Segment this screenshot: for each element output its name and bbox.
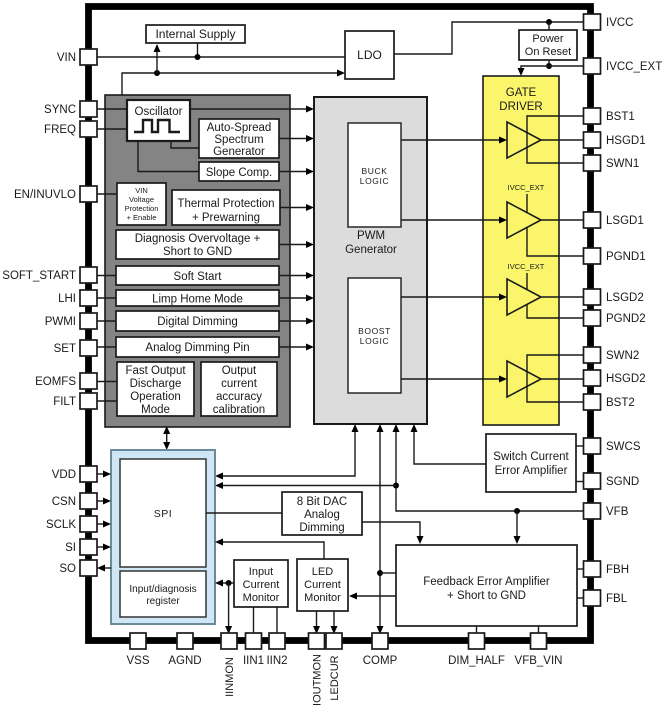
svg-text:LOGIC: LOGIC <box>360 336 389 346</box>
svg-text:HSGD1: HSGD1 <box>606 135 646 147</box>
svg-text:Input: Input <box>249 566 273 578</box>
svg-text:IINMON: IINMON <box>224 657 236 697</box>
svg-text:IVCC_EXT: IVCC_EXT <box>606 61 662 73</box>
svg-text:calibration: calibration <box>213 404 265 416</box>
svg-text:Protection: Protection <box>125 204 159 213</box>
svg-text:HSGD2: HSGD2 <box>606 373 646 385</box>
svg-text:SGND: SGND <box>606 476 639 488</box>
svg-text:Analog: Analog <box>304 509 340 521</box>
svg-text:Analog Dimming Pin: Analog Dimming Pin <box>145 342 249 354</box>
svg-text:+ Short to GND: + Short to GND <box>447 590 526 602</box>
svg-text:SYNC: SYNC <box>44 104 76 116</box>
svg-text:IOUTMON: IOUTMON <box>312 654 324 706</box>
svg-text:IIN2: IIN2 <box>266 655 287 667</box>
svg-text:Operation: Operation <box>130 391 181 403</box>
svg-text:Power: Power <box>532 33 564 45</box>
svg-text:EN/INUVLO: EN/INUVLO <box>14 189 76 201</box>
svg-text:Voltage: Voltage <box>129 195 154 204</box>
svg-text:IVCC_EXT: IVCC_EXT <box>508 262 545 271</box>
svg-text:Diagnosis Overvoltage +: Diagnosis Overvoltage + <box>135 233 261 245</box>
svg-text:AGND: AGND <box>168 655 201 667</box>
svg-text:VDD: VDD <box>52 469 76 481</box>
svg-text:LSGD1: LSGD1 <box>606 215 644 227</box>
svg-text:Current: Current <box>243 579 280 591</box>
svg-text:PGND2: PGND2 <box>606 313 646 325</box>
svg-text:IVCC: IVCC <box>606 17 633 29</box>
svg-text:Feedback Error Amplifier: Feedback Error Amplifier <box>423 576 550 588</box>
svg-text:SWN1: SWN1 <box>606 158 639 170</box>
svg-text:SI: SI <box>65 542 76 554</box>
svg-text:Switch Current: Switch Current <box>493 451 569 463</box>
svg-text:DIM_HALF: DIM_HALF <box>448 655 505 667</box>
svg-text:BUCK: BUCK <box>361 166 387 176</box>
svg-text:DRIVER: DRIVER <box>499 101 542 113</box>
svg-text:current: current <box>221 378 258 390</box>
svg-text:Monitor: Monitor <box>243 592 280 604</box>
svg-text:SWCS: SWCS <box>606 441 641 453</box>
svg-text:Fast Output: Fast Output <box>125 365 186 377</box>
svg-text:LED: LED <box>312 566 333 578</box>
svg-text:SPI: SPI <box>154 508 172 520</box>
svg-text:PGND1: PGND1 <box>606 251 646 263</box>
svg-text:BOOST: BOOST <box>358 326 391 336</box>
svg-text:Digital Dimming: Digital Dimming <box>157 316 238 328</box>
svg-text:SWN2: SWN2 <box>606 350 639 362</box>
svg-text:LSGD2: LSGD2 <box>606 292 644 304</box>
svg-text:accuracy: accuracy <box>216 391 262 403</box>
svg-text:CSN: CSN <box>52 496 76 508</box>
svg-text:Short to GND: Short to GND <box>163 246 232 258</box>
svg-text:LEDCUR: LEDCUR <box>329 655 341 700</box>
svg-text:Monitor: Monitor <box>304 592 341 604</box>
svg-text:BST2: BST2 <box>606 397 635 409</box>
svg-text:Generator: Generator <box>345 244 397 256</box>
svg-text:+ Prewarning: + Prewarning <box>192 212 260 224</box>
svg-text:Thermal Protection: Thermal Protection <box>177 198 274 210</box>
svg-text:GATE: GATE <box>506 87 537 99</box>
svg-text:Limp Home Mode: Limp Home Mode <box>152 294 243 306</box>
svg-text:FBH: FBH <box>606 564 629 576</box>
svg-text:LHI: LHI <box>58 293 76 305</box>
svg-text:Discharge: Discharge <box>130 378 182 390</box>
svg-text:Spectrum: Spectrum <box>214 134 263 146</box>
svg-text:FILT: FILT <box>53 396 76 408</box>
svg-text:EOMFS: EOMFS <box>35 376 76 388</box>
svg-text:On Reset: On Reset <box>525 46 571 58</box>
svg-text:Dimming: Dimming <box>299 522 344 534</box>
svg-text:Soft Start: Soft Start <box>174 271 223 283</box>
svg-text:Auto-Spread: Auto-Spread <box>207 122 272 134</box>
svg-text:Generator: Generator <box>213 146 265 158</box>
svg-text:VFB_VIN: VFB_VIN <box>515 655 563 667</box>
svg-text:LDO: LDO <box>357 48 382 62</box>
svg-text:VSS: VSS <box>126 655 149 667</box>
svg-text:+ Enable: + Enable <box>127 213 157 222</box>
svg-text:VIN: VIN <box>135 186 148 195</box>
svg-text:8 Bit DAC: 8 Bit DAC <box>297 496 348 508</box>
svg-text:register: register <box>146 596 180 607</box>
svg-text:Slope Comp.: Slope Comp. <box>206 167 272 179</box>
svg-text:IIN1: IIN1 <box>243 655 264 667</box>
svg-text:LOGIC: LOGIC <box>360 176 389 186</box>
svg-text:BST1: BST1 <box>606 111 635 123</box>
svg-text:Error Amplifier: Error Amplifier <box>495 465 568 477</box>
svg-text:Internal Supply: Internal Supply <box>155 27 235 41</box>
svg-text:Output: Output <box>222 365 257 377</box>
svg-text:FBL: FBL <box>606 593 628 605</box>
svg-text:SO: SO <box>59 563 76 575</box>
svg-text:SCLK: SCLK <box>46 519 76 531</box>
svg-text:Current: Current <box>304 579 341 591</box>
svg-text:SOFT_START: SOFT_START <box>2 270 76 282</box>
svg-text:VIN: VIN <box>57 52 76 64</box>
svg-text:PWMI: PWMI <box>45 316 76 328</box>
svg-text:IVCC_EXT: IVCC_EXT <box>508 183 545 192</box>
svg-text:Mode: Mode <box>141 404 170 416</box>
svg-text:COMP: COMP <box>363 655 398 667</box>
svg-text:PWM: PWM <box>357 230 385 242</box>
svg-text:Oscillator: Oscillator <box>135 106 183 118</box>
svg-text:FREQ: FREQ <box>44 124 76 136</box>
svg-text:Input/diagnosis: Input/diagnosis <box>129 584 196 595</box>
svg-text:SET: SET <box>54 343 76 355</box>
svg-text:VFB: VFB <box>606 506 629 518</box>
